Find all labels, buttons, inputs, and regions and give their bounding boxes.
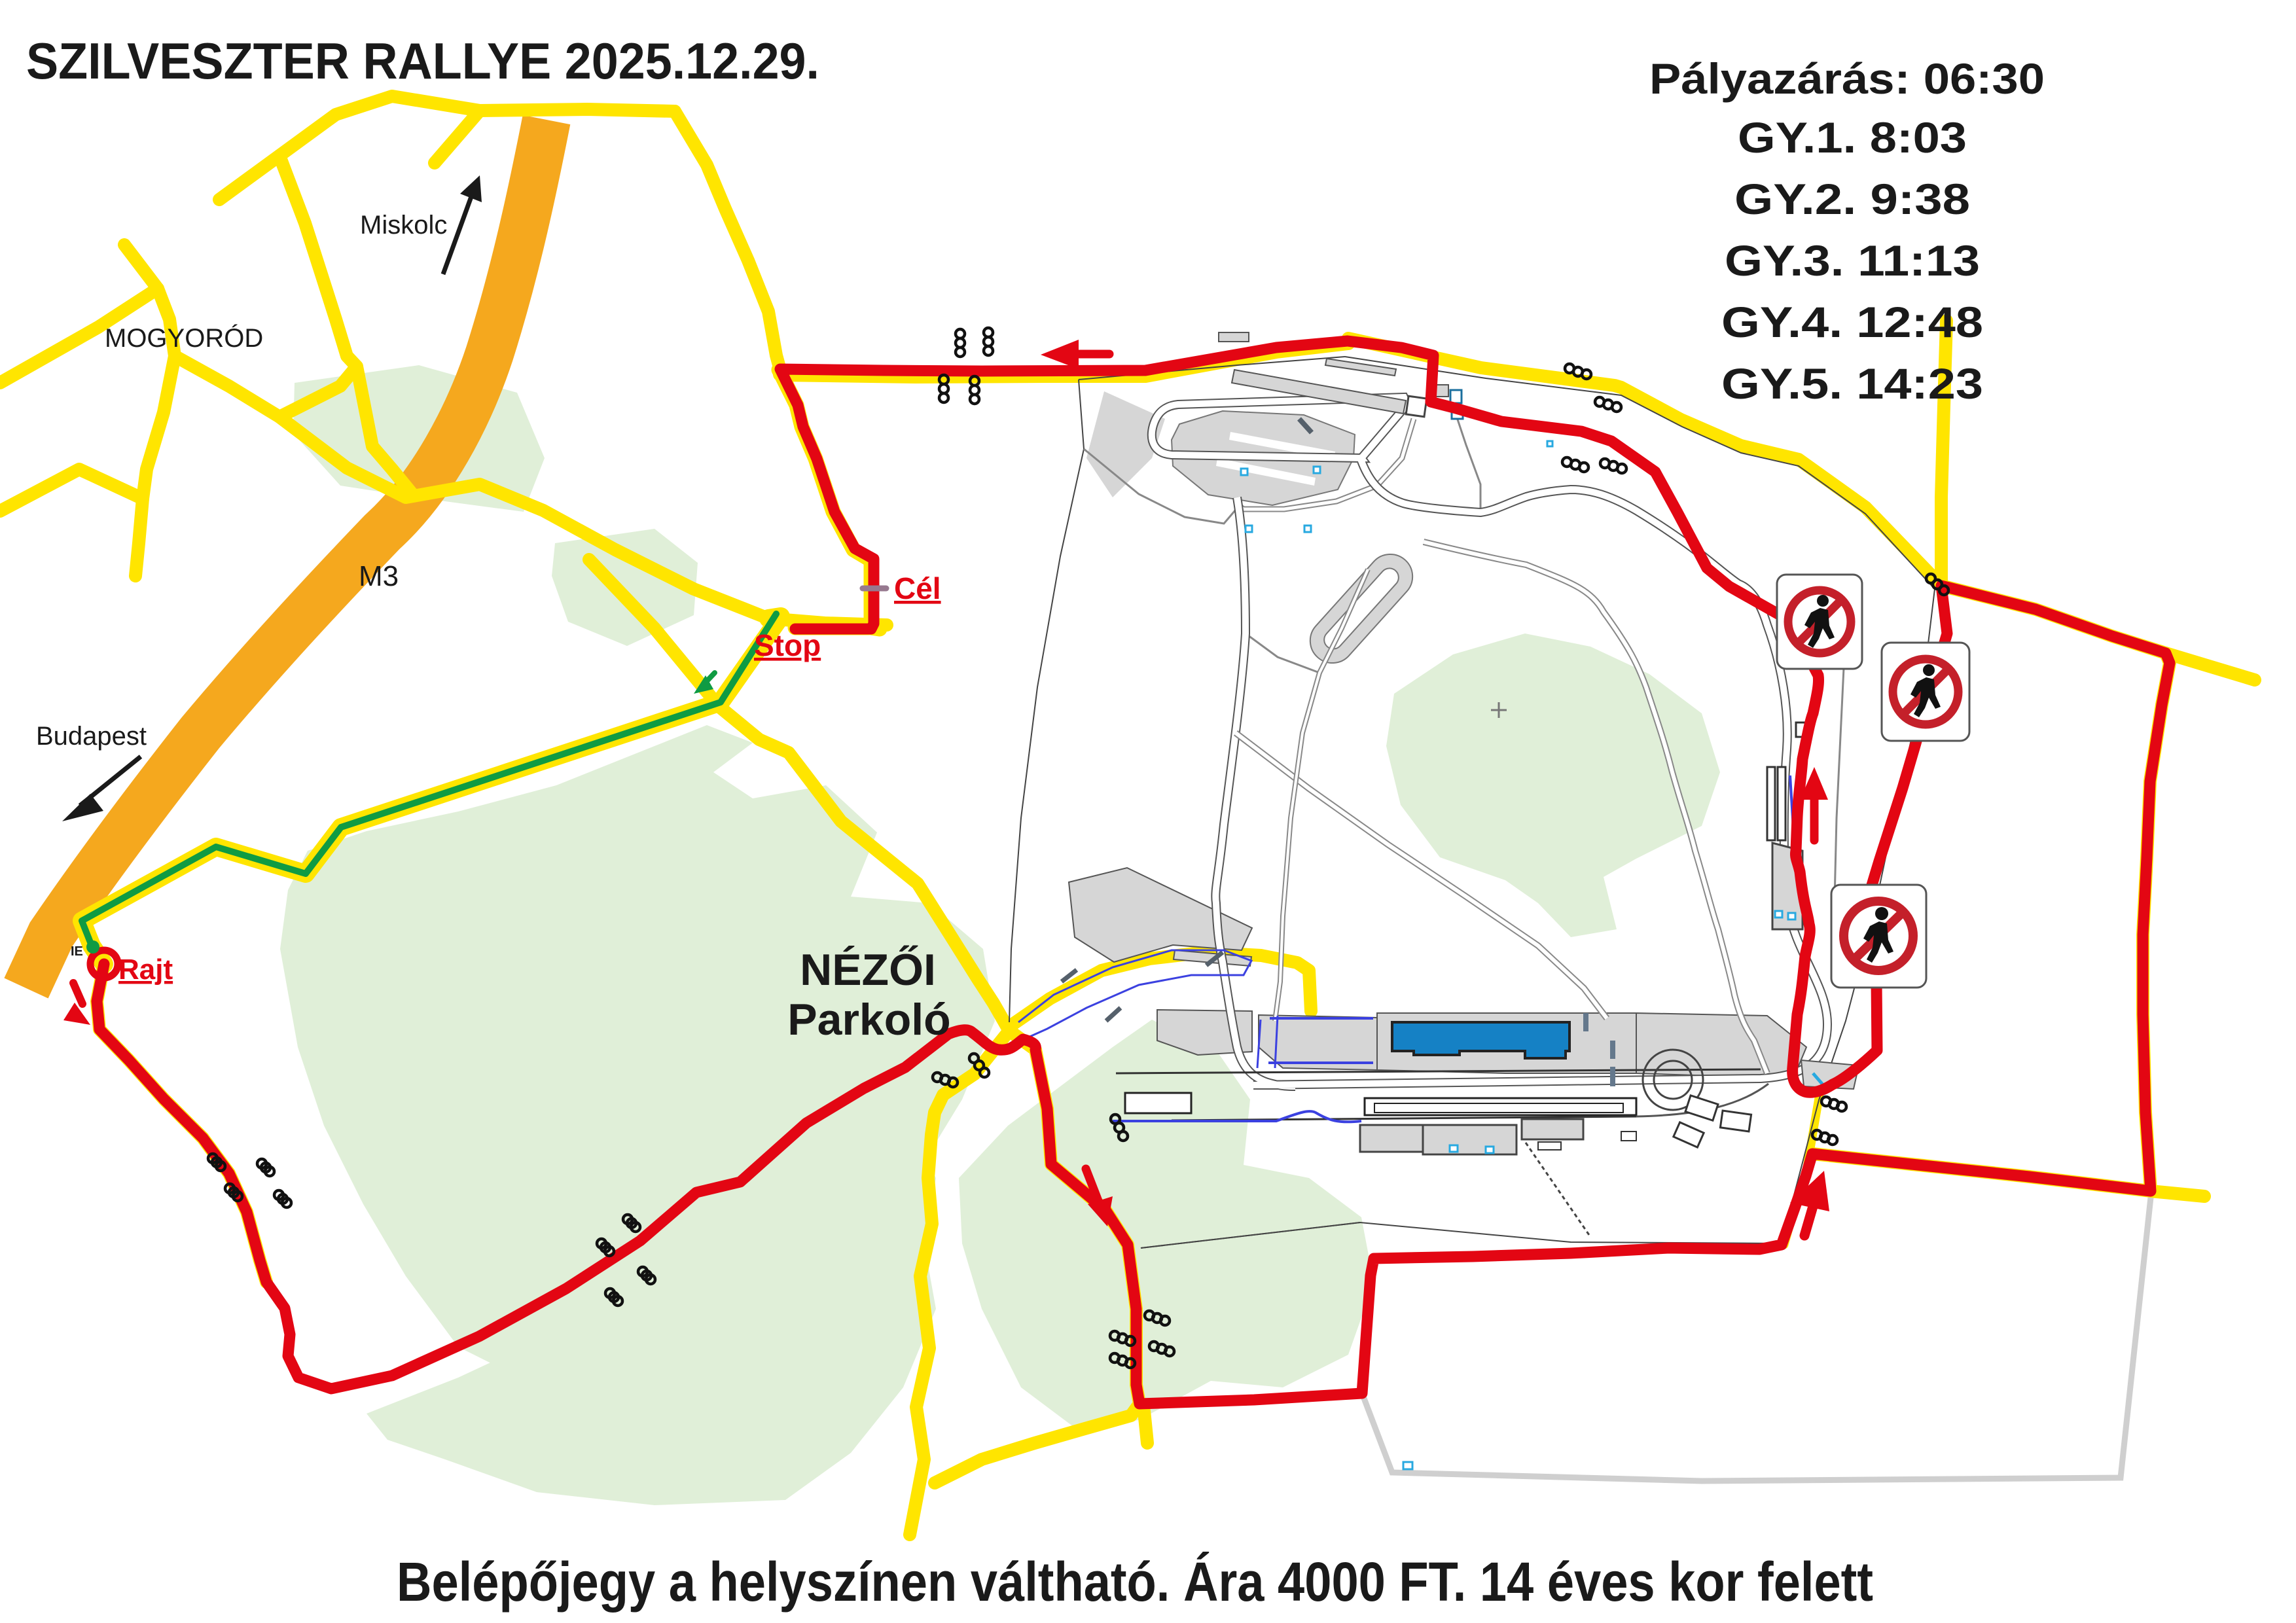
svg-text:M3: M3 — [359, 560, 399, 592]
svg-text:NÉZŐI: NÉZŐI — [800, 945, 936, 995]
svg-text:GY.5. 14:23: GY.5. 14:23 — [1721, 359, 1983, 408]
svg-text:Rajt: Rajt — [118, 954, 173, 986]
svg-text:SZILVESZTER RALLYE 2025.12.29.: SZILVESZTER RALLYE 2025.12.29. — [26, 32, 819, 90]
svg-text:IE: IE — [71, 944, 83, 959]
svg-text:GY.2. 9:38: GY.2. 9:38 — [1734, 175, 1970, 223]
svg-text:MOGYORÓD: MOGYORÓD — [105, 323, 263, 353]
svg-text:Belépőjegy a helyszínen váltha: Belépőjegy a helyszínen váltható. Ára 40… — [397, 1551, 1873, 1613]
svg-text:Stop: Stop — [754, 628, 821, 662]
svg-text:Miskolc: Miskolc — [360, 211, 447, 240]
svg-text:GY.1. 8:03: GY.1. 8:03 — [1738, 113, 1967, 162]
svg-text:Budapest: Budapest — [36, 722, 147, 751]
svg-text:Pályazárás: 06:30: Pályazárás: 06:30 — [1649, 54, 2045, 103]
svg-text:Parkoló: Parkoló — [787, 995, 950, 1044]
svg-text:Cél: Cél — [894, 571, 941, 605]
svg-text:GY.3. 11:13: GY.3. 11:13 — [1725, 236, 1980, 285]
svg-text:GY.4. 12:48: GY.4. 12:48 — [1721, 298, 1983, 346]
